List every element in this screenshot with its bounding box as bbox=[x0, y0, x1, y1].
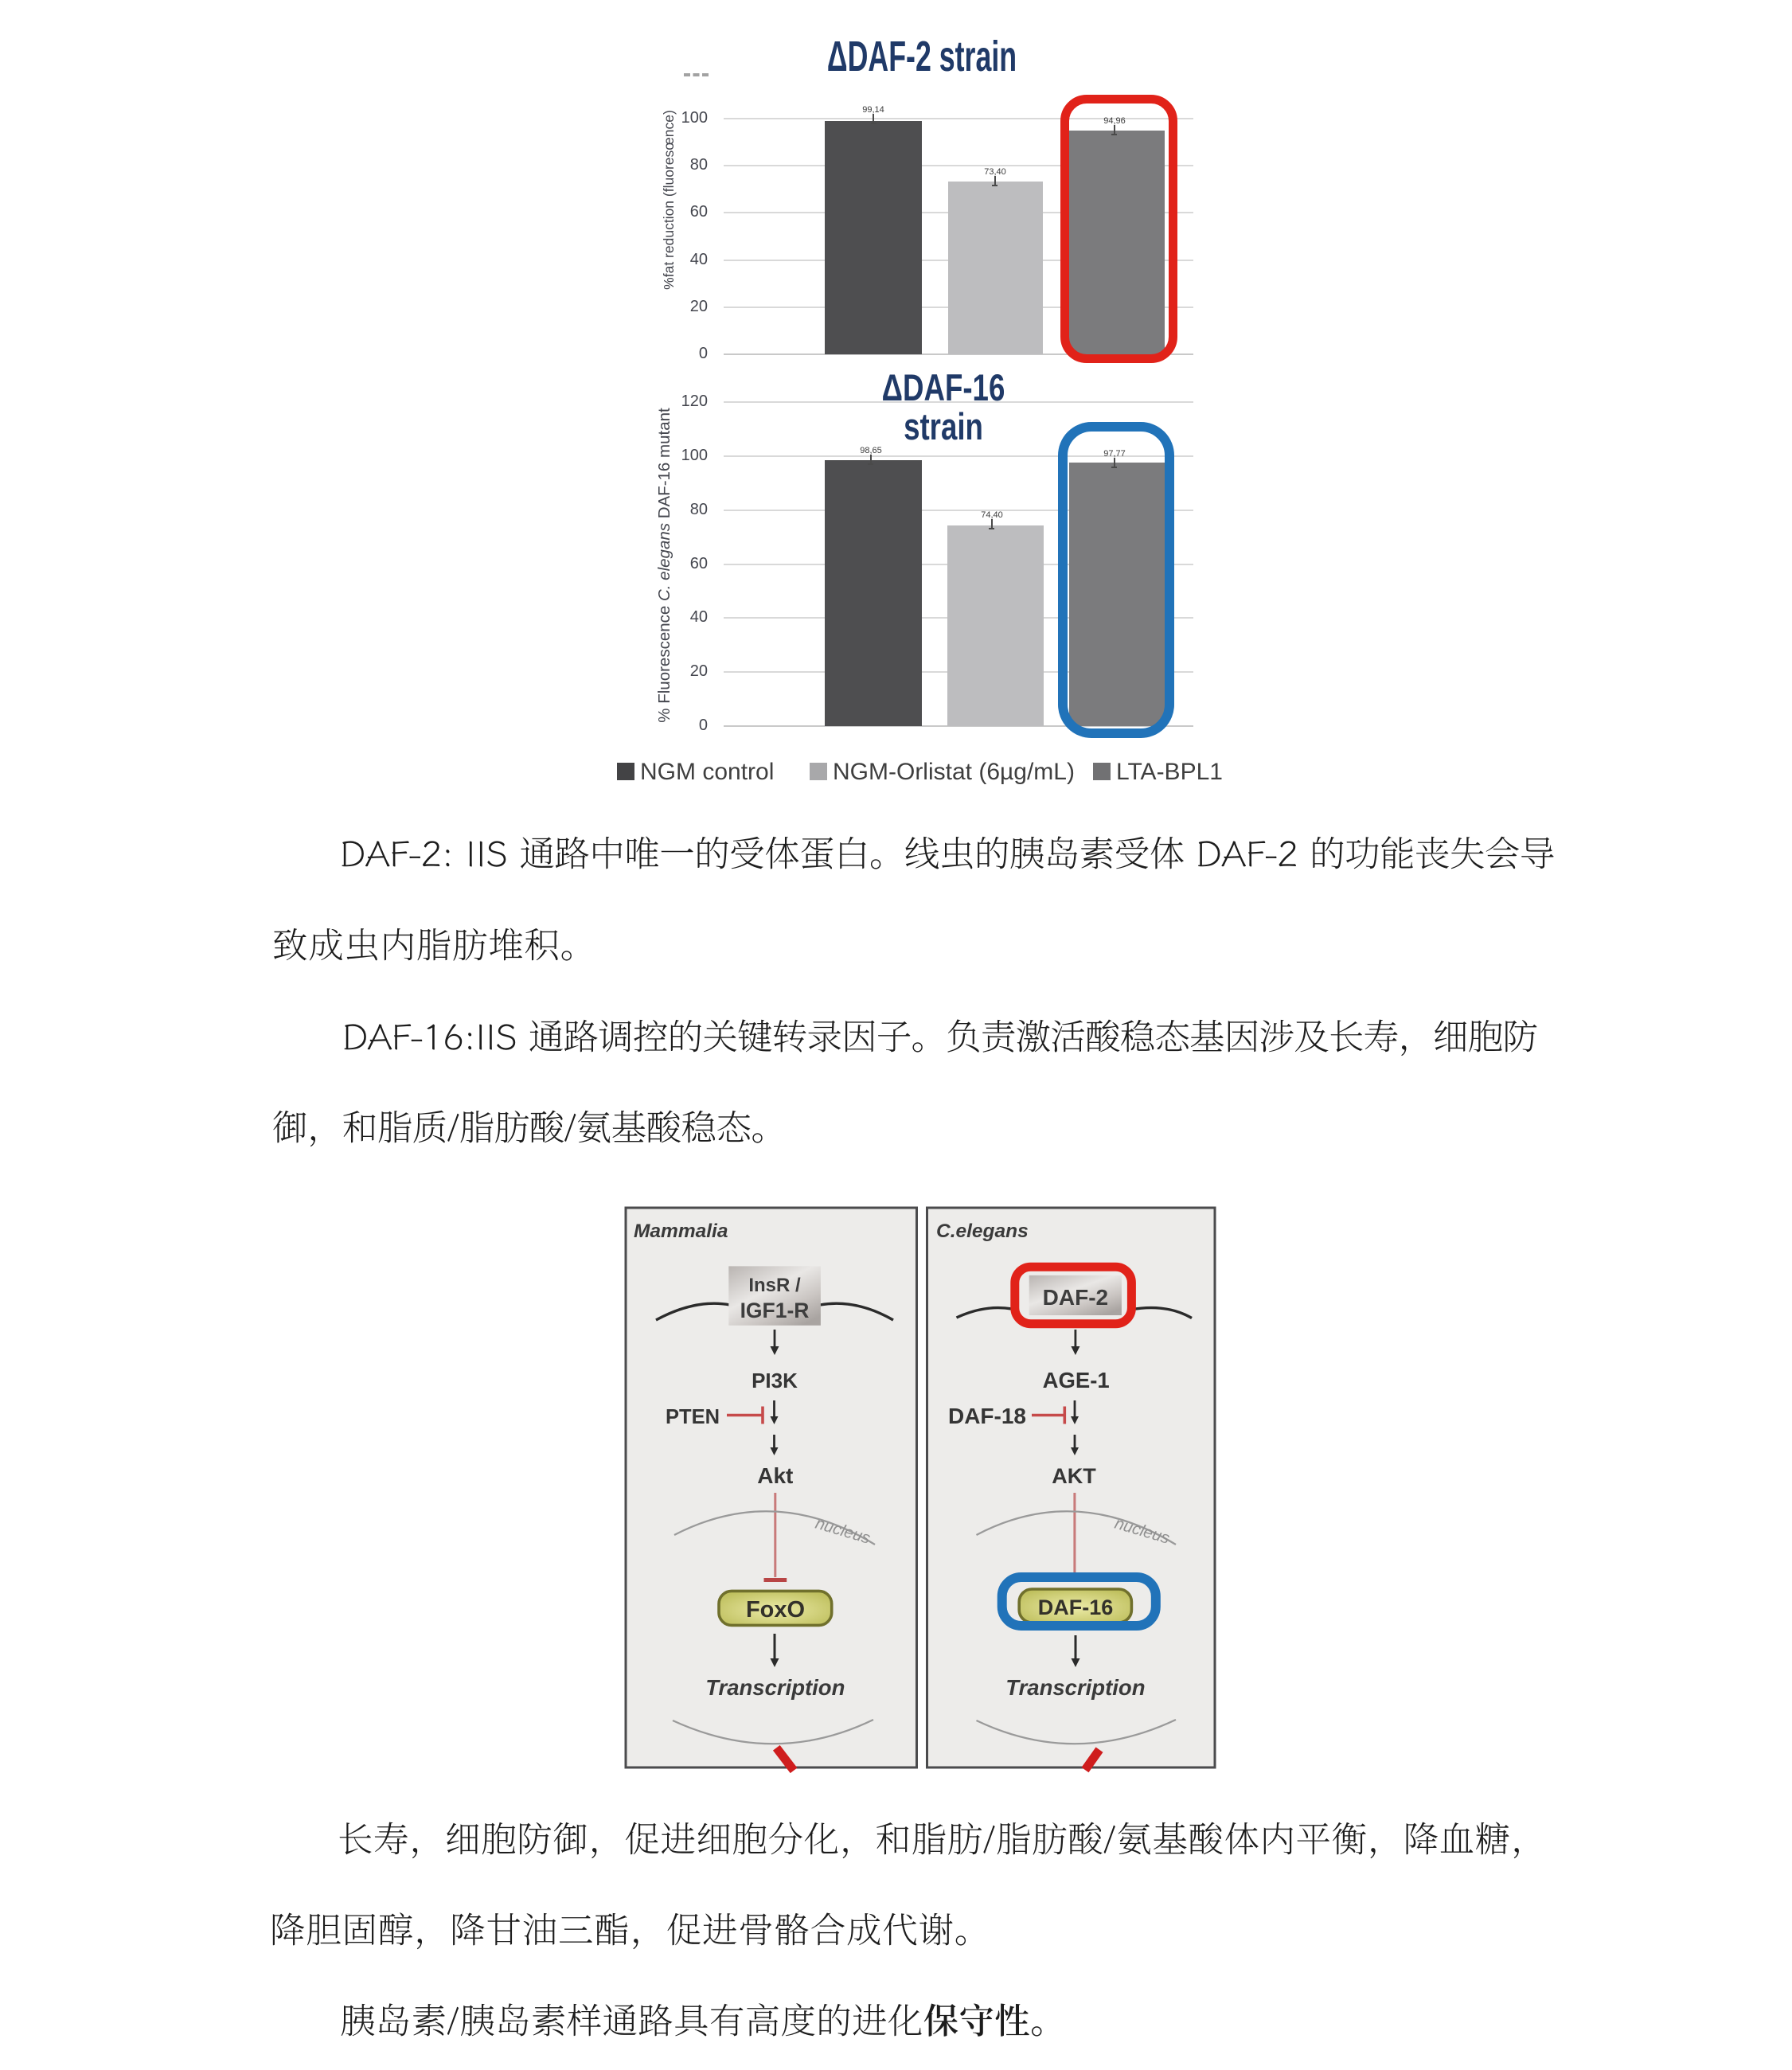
svg-text:AKT: AKT bbox=[1052, 1464, 1096, 1488]
svg-text:AGE-1: AGE-1 bbox=[1043, 1368, 1110, 1392]
svg-text:IGF1-R: IGF1-R bbox=[740, 1299, 810, 1322]
svg-text:PI3K: PI3K bbox=[752, 1369, 798, 1392]
svg-text:DAF-16: DAF-16 bbox=[1038, 1595, 1114, 1619]
svg-text:InsR /: InsR / bbox=[748, 1275, 801, 1296]
svg-text:Mammalia: Mammalia bbox=[634, 1221, 728, 1242]
svg-text:FoxO: FoxO bbox=[746, 1597, 805, 1623]
svg-text:DAF-2: DAF-2 bbox=[1043, 1285, 1108, 1310]
svg-text:Akt: Akt bbox=[757, 1463, 793, 1488]
svg-text:C.elegans: C.elegans bbox=[936, 1221, 1029, 1242]
svg-text:PTEN: PTEN bbox=[666, 1406, 720, 1428]
svg-text:Transcription: Transcription bbox=[705, 1675, 845, 1700]
svg-text:Transcription: Transcription bbox=[1005, 1675, 1145, 1700]
svg-text:DAF-18: DAF-18 bbox=[948, 1404, 1026, 1428]
